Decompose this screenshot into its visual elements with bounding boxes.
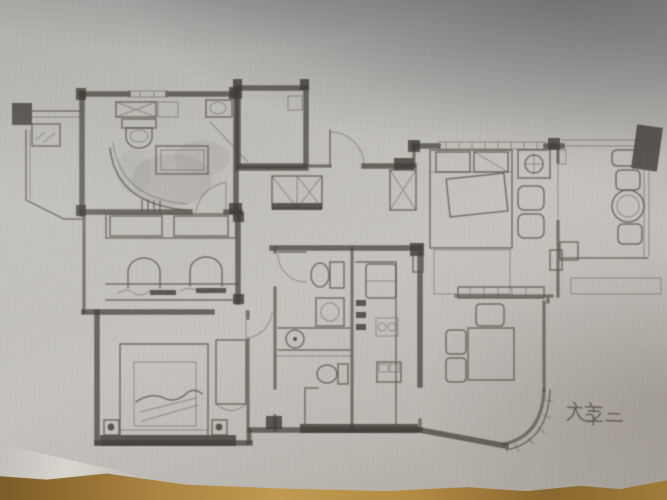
wet-block (250, 243, 424, 443)
balcony (558, 124, 663, 294)
wardrobe (216, 340, 246, 411)
round-table (612, 190, 644, 222)
photo-of-floor-plan: 方案二 (0, 0, 667, 500)
nightstand (104, 420, 119, 435)
chair (446, 358, 466, 382)
kitchen (356, 262, 401, 424)
sink-counter (278, 328, 350, 350)
light-well (233, 79, 309, 168)
toilet (311, 262, 344, 288)
stove (376, 318, 398, 336)
chair (476, 304, 504, 326)
entry-door (330, 130, 364, 166)
bathroom (278, 252, 350, 350)
shower-stall (305, 388, 318, 430)
ensuite-bathroom (76, 87, 248, 216)
chair (618, 224, 642, 244)
dining-table (468, 328, 514, 380)
double-sink (377, 362, 401, 382)
nightstand (212, 420, 227, 435)
closet (390, 170, 416, 210)
double-bed (430, 150, 512, 294)
exterior-column-and-planter (12, 103, 82, 219)
long-desk (106, 284, 238, 300)
bed (120, 344, 208, 436)
second-bathroom (275, 356, 352, 430)
chair (190, 257, 222, 286)
dining-area (420, 302, 553, 451)
armchair (518, 214, 544, 238)
annotation-text: 方案二 (567, 402, 623, 426)
washing-machine (316, 298, 344, 326)
ac-ledge (571, 278, 661, 294)
door (278, 252, 306, 282)
counter (356, 262, 396, 424)
chair (616, 170, 640, 190)
curved-wall (420, 302, 553, 451)
lamp-table (518, 150, 550, 178)
floor-plan-drawing: 方案二 (0, 0, 667, 500)
toilet (317, 364, 348, 384)
toilet (206, 100, 232, 117)
pillow (436, 152, 470, 172)
bookshelf (106, 214, 236, 238)
armchair (518, 186, 544, 210)
duvet (446, 173, 508, 217)
shower-box (116, 102, 178, 117)
second-bedroom (97, 312, 250, 446)
master-bedroom (408, 138, 562, 302)
closet (272, 176, 322, 210)
study (84, 212, 272, 338)
vanity-sink (122, 119, 156, 148)
chair (446, 330, 466, 354)
